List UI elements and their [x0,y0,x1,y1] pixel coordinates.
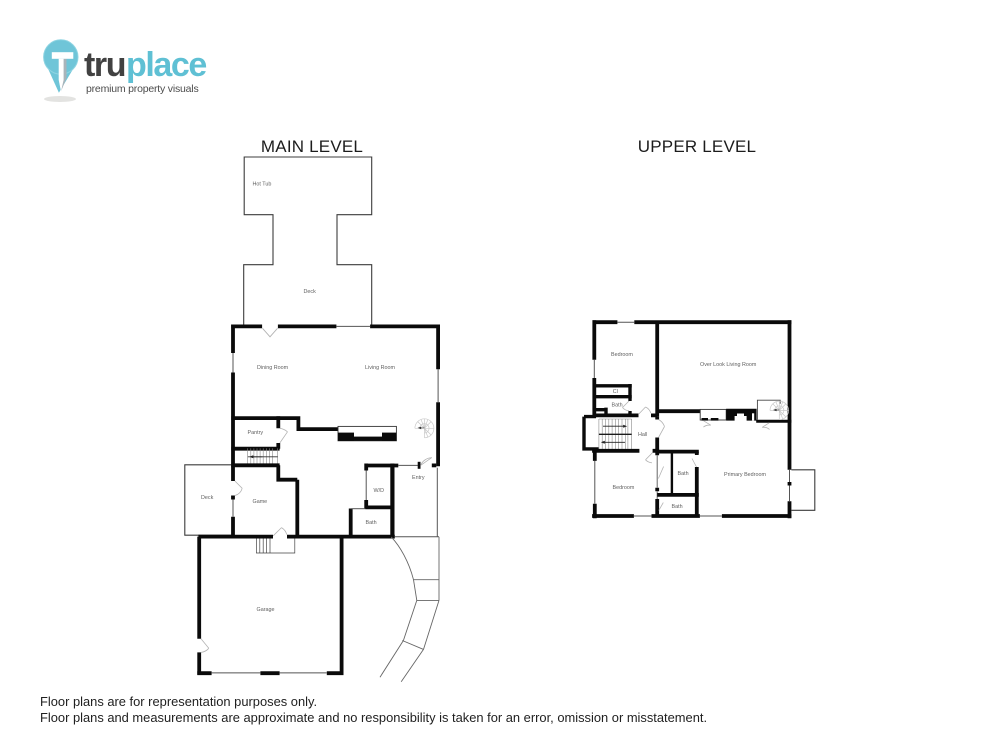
svg-text:Game: Game [253,499,268,505]
svg-text:Garage: Garage [257,607,275,613]
svg-text:Bath: Bath [672,504,683,510]
svg-text:Hall: Hall [638,432,647,438]
svg-text:Deck: Deck [201,495,214,501]
svg-text:Bath: Bath [678,471,689,477]
svg-text:Pantry: Pantry [248,430,264,436]
svg-text:Hot Tub: Hot Tub [253,182,272,188]
svg-text:Bedroom: Bedroom [611,352,633,358]
svg-text:Cl: Cl [613,389,618,395]
svg-text:Bath: Bath [366,520,377,526]
svg-text:Deck: Deck [304,289,317,295]
svg-text:Dining Room: Dining Room [257,365,289,371]
svg-text:W/D: W/D [374,488,385,494]
svg-text:Primary Bedroom: Primary Bedroom [724,472,766,478]
svg-text:Over Look Living Room: Over Look Living Room [700,362,757,368]
svg-text:Bedroom: Bedroom [613,485,635,491]
svg-text:Bath: Bath [612,403,623,409]
svg-text:Entry: Entry [412,475,425,481]
svg-text:Living Room: Living Room [365,365,395,371]
